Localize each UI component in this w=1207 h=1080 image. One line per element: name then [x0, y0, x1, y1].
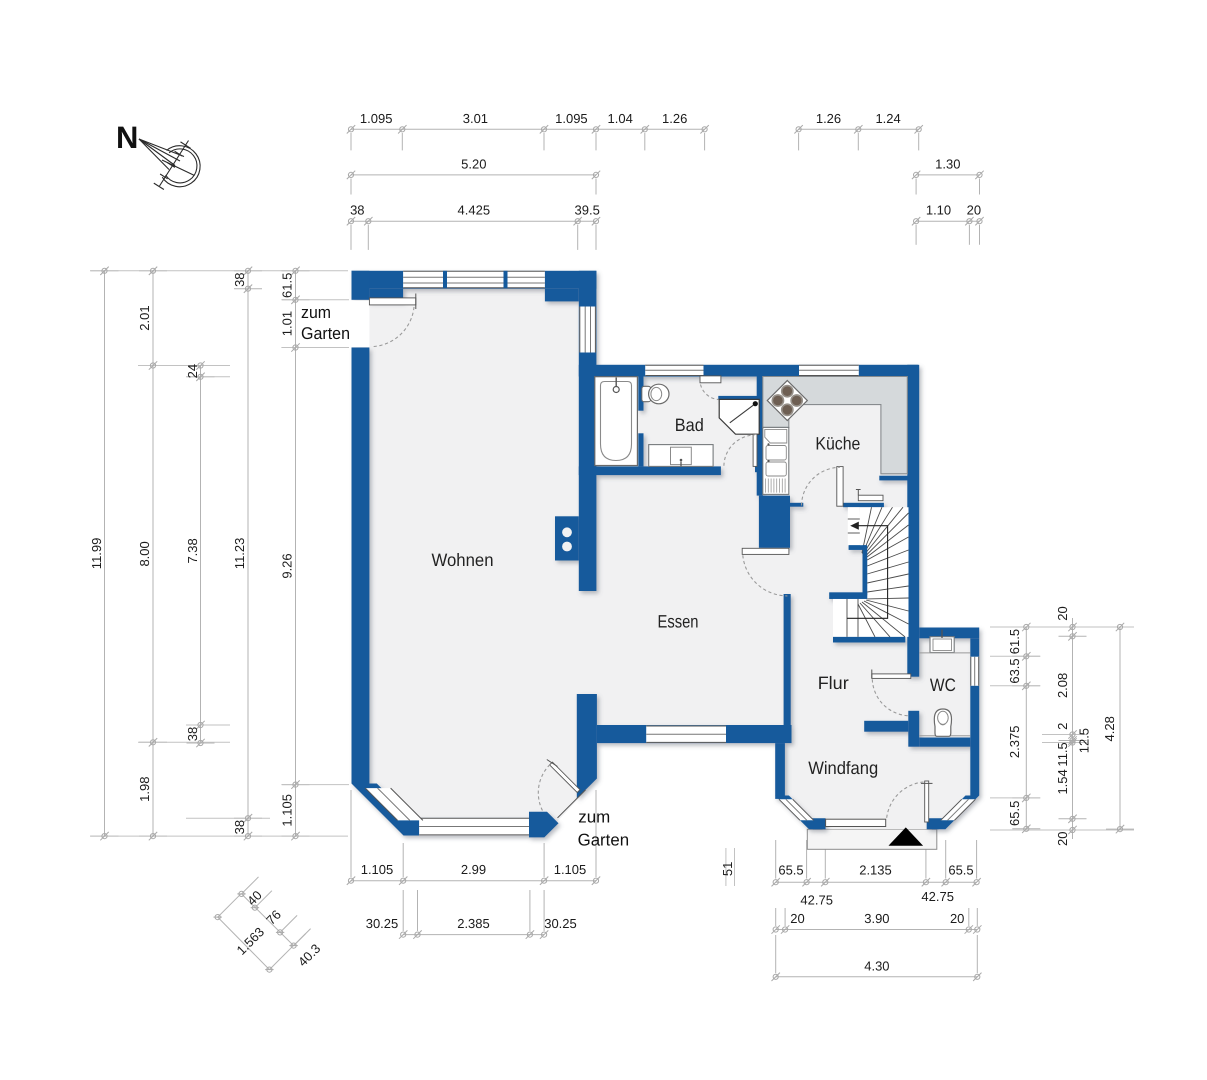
- svg-text:Küche: Küche: [815, 434, 860, 454]
- svg-text:24: 24: [185, 364, 200, 378]
- svg-text:zum: zum: [578, 808, 610, 827]
- svg-text:1.01: 1.01: [280, 311, 295, 336]
- svg-text:38: 38: [185, 727, 200, 741]
- svg-text:2.375: 2.375: [1007, 726, 1022, 759]
- svg-text:42.75: 42.75: [921, 889, 954, 904]
- svg-text:20: 20: [950, 911, 964, 926]
- svg-text:5.20: 5.20: [461, 157, 486, 172]
- svg-text:65.5: 65.5: [778, 863, 803, 878]
- svg-text:zum: zum: [301, 303, 331, 322]
- svg-text:Bad: Bad: [675, 415, 704, 435]
- svg-text:30.25: 30.25: [366, 916, 399, 931]
- svg-text:Windfang: Windfang: [808, 758, 878, 778]
- svg-text:61.5: 61.5: [1007, 629, 1022, 654]
- svg-text:1.105: 1.105: [361, 862, 394, 877]
- svg-text:1.26: 1.26: [662, 111, 687, 126]
- svg-text:51: 51: [720, 862, 735, 876]
- svg-text:1.30: 1.30: [935, 157, 960, 172]
- svg-text:3.01: 3.01: [463, 111, 488, 126]
- svg-text:1.54: 1.54: [1055, 769, 1070, 794]
- svg-text:39.5: 39.5: [575, 203, 600, 218]
- svg-text:2.01: 2.01: [137, 305, 152, 330]
- svg-text:4.425: 4.425: [458, 203, 491, 218]
- svg-text:1.10: 1.10: [926, 203, 951, 218]
- svg-text:1.26: 1.26: [816, 111, 841, 126]
- svg-text:1.04: 1.04: [608, 111, 633, 126]
- svg-text:1.095: 1.095: [360, 111, 393, 126]
- svg-text:2.135: 2.135: [859, 863, 892, 878]
- svg-text:65.5: 65.5: [948, 863, 973, 878]
- svg-text:7.38: 7.38: [185, 538, 200, 563]
- svg-text:Garten: Garten: [578, 831, 630, 850]
- svg-text:11.23: 11.23: [232, 538, 247, 570]
- svg-text:4.28: 4.28: [1102, 716, 1117, 741]
- svg-text:WC: WC: [930, 675, 956, 695]
- svg-text:Garten: Garten: [301, 324, 350, 343]
- svg-text:2: 2: [1055, 723, 1070, 730]
- svg-text:61.5: 61.5: [280, 273, 295, 298]
- svg-text:65.5: 65.5: [1007, 801, 1022, 826]
- svg-text:12.5: 12.5: [1076, 728, 1091, 753]
- svg-text:2.08: 2.08: [1055, 673, 1070, 698]
- svg-text:Wohnen: Wohnen: [432, 550, 494, 570]
- svg-text:1.98: 1.98: [137, 777, 152, 802]
- svg-text:20: 20: [1055, 832, 1070, 846]
- svg-text:38: 38: [232, 820, 247, 834]
- svg-text:30.25: 30.25: [544, 916, 577, 931]
- svg-text:9.26: 9.26: [280, 553, 295, 578]
- svg-text:63.5: 63.5: [1007, 658, 1022, 683]
- svg-text:11.99: 11.99: [89, 538, 104, 570]
- svg-text:N: N: [116, 120, 138, 155]
- svg-text:20: 20: [1055, 606, 1070, 620]
- svg-text:20: 20: [967, 203, 981, 218]
- svg-text:1.24: 1.24: [875, 111, 900, 126]
- svg-text:1.095: 1.095: [555, 111, 588, 126]
- svg-text:Flur: Flur: [818, 673, 849, 693]
- svg-text:Essen: Essen: [658, 612, 699, 632]
- svg-text:1.105: 1.105: [280, 794, 295, 827]
- svg-text:42.75: 42.75: [800, 892, 833, 907]
- svg-text:8.00: 8.00: [137, 541, 152, 566]
- svg-text:2.385: 2.385: [457, 916, 490, 931]
- svg-text:11.5: 11.5: [1055, 742, 1070, 766]
- svg-text:38: 38: [350, 203, 364, 218]
- svg-text:20: 20: [790, 911, 804, 926]
- svg-text:38: 38: [232, 272, 247, 286]
- svg-text:3.90: 3.90: [864, 911, 889, 926]
- svg-text:4.30: 4.30: [864, 958, 889, 973]
- svg-text:1.105: 1.105: [554, 862, 587, 877]
- svg-text:2.99: 2.99: [461, 862, 486, 877]
